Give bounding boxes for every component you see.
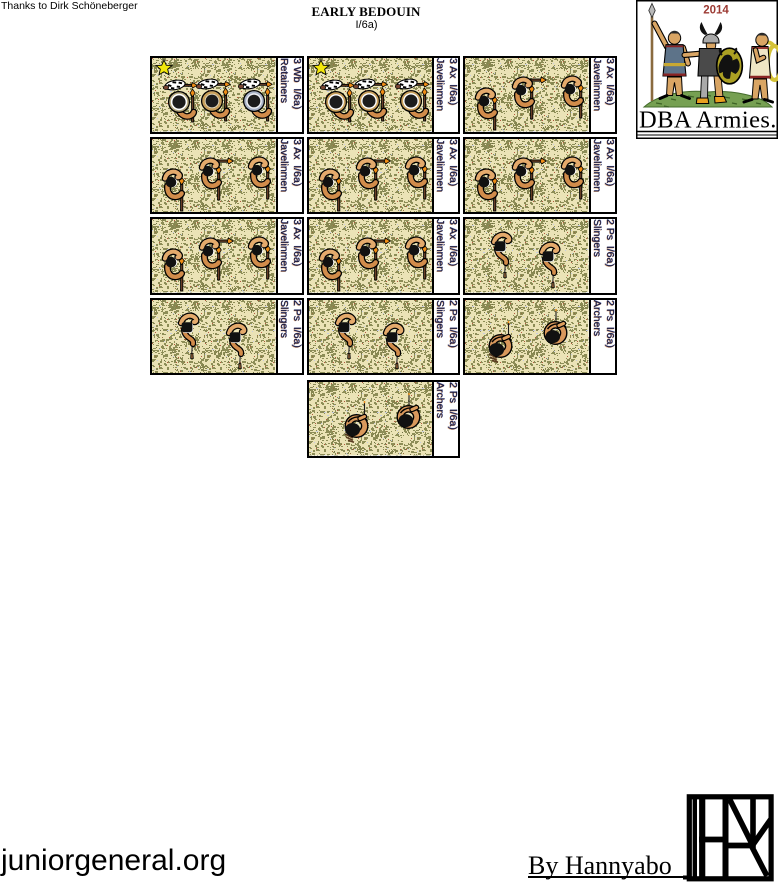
svg-text:DBA Armies.: DBA Armies. [639, 107, 777, 134]
svg-text:2014: 2014 [703, 5, 729, 17]
